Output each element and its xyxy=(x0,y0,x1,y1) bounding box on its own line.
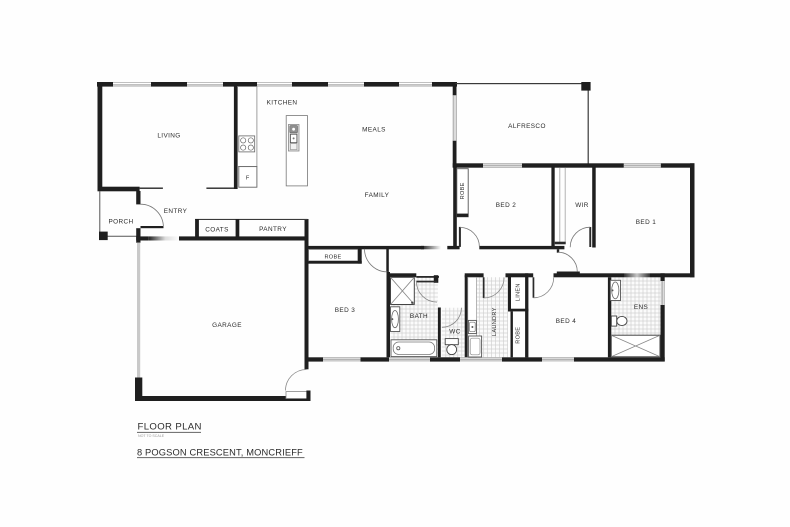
svg-text:PANTRY: PANTRY xyxy=(259,226,287,233)
svg-text:NOT TO SCALE: NOT TO SCALE xyxy=(138,434,165,438)
svg-text:LINEN: LINEN xyxy=(515,283,521,301)
svg-text:F: F xyxy=(246,176,250,182)
svg-text:BED 4: BED 4 xyxy=(556,318,577,325)
svg-text:ROBE: ROBE xyxy=(324,254,341,260)
svg-text:WC: WC xyxy=(449,329,460,336)
svg-text:BED 1: BED 1 xyxy=(636,219,657,226)
svg-text:GARAGE: GARAGE xyxy=(212,322,242,329)
svg-text:FAMILY: FAMILY xyxy=(365,192,390,199)
svg-text:WIR: WIR xyxy=(575,202,589,209)
svg-text:FLOOR PLAN: FLOOR PLAN xyxy=(138,422,202,433)
svg-text:COATS: COATS xyxy=(205,227,229,234)
svg-text:8 POGSON CRESCENT, MONCRIEFF: 8 POGSON CRESCENT, MONCRIEFF xyxy=(137,447,303,457)
svg-text:BED 2: BED 2 xyxy=(496,202,517,209)
svg-text:ROBE: ROBE xyxy=(460,182,466,199)
svg-text:ENTRY: ENTRY xyxy=(164,208,188,215)
svg-text:PORCH: PORCH xyxy=(108,219,133,226)
svg-text:KITCHEN: KITCHEN xyxy=(267,99,298,106)
svg-text:MEALS: MEALS xyxy=(362,127,386,134)
svg-text:LAUNDRY: LAUNDRY xyxy=(492,307,498,336)
svg-text:ALFRESCO: ALFRESCO xyxy=(508,123,546,130)
svg-text:ENS: ENS xyxy=(634,304,648,311)
svg-text:BATH: BATH xyxy=(410,313,428,320)
svg-text:BED 3: BED 3 xyxy=(335,307,356,314)
svg-text:ROBE: ROBE xyxy=(515,327,521,344)
svg-text:LIVING: LIVING xyxy=(157,133,180,140)
